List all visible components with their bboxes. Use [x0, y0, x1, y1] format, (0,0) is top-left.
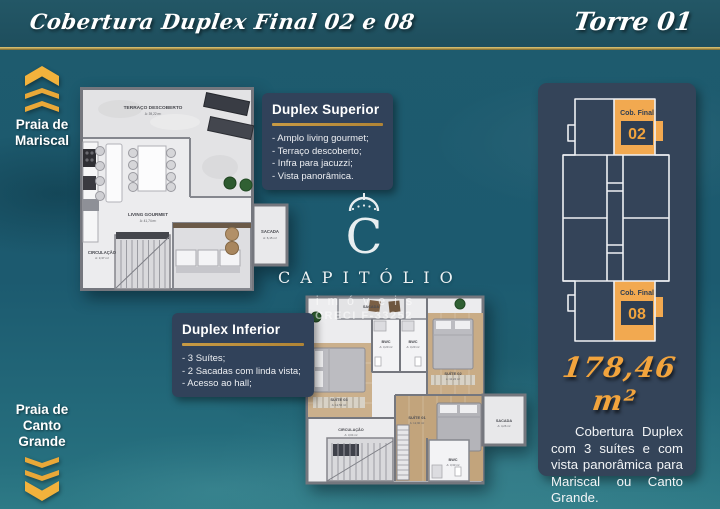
floorplan-duplex-inferior: SACADA BWC A: 3,20 m² BWC A: 3,20 m² SUÍ… — [305, 295, 530, 487]
room-area-circulacao: A: 3,37 m² — [95, 256, 109, 260]
room-label-living: LIVING GOURMET — [128, 212, 168, 217]
chevron-down-stripe — [25, 470, 59, 481]
unit-02-number: 02 — [628, 126, 646, 143]
marker-label-line: Praia de — [3, 402, 81, 418]
unit-02-label: Cob. Final — [620, 110, 654, 117]
chevron-up-solid — [25, 66, 59, 86]
feature-item: - 2 Sacadas com linda vista; — [182, 366, 304, 379]
marker-label-line: Canto — [3, 418, 81, 434]
panel-inferior-title: Duplex Inferior — [182, 322, 304, 337]
room-area-sacada: A: 6,15 m² — [263, 236, 277, 240]
banner-title-left: Cobertura Duplex Final 02 e 08 — [28, 9, 416, 34]
chevron-down-stripe — [25, 457, 59, 468]
listing-description: Cobertura Duplex com 3 suítes e com vist… — [551, 424, 683, 507]
room-label-circulacao-inf: CIRCULAÇÃO — [338, 427, 364, 432]
room-label-bwc3: BWC — [448, 458, 457, 462]
gold-underline — [272, 123, 383, 126]
room-label-suite03: SUÍTE 03 — [330, 397, 348, 402]
room-label-bwc2: BWC — [408, 340, 417, 344]
panel-superior-title: Duplex Superior — [272, 102, 383, 117]
room-area-suite01: A: 12,90 m² — [410, 421, 425, 425]
room-area-circulacao-inf: A: 3,04 m² — [345, 433, 358, 437]
room-area-bwc1: A: 3,20 m² — [380, 345, 393, 349]
gold-underline — [182, 343, 304, 346]
feature-list-inferior: - 3 Suítes; - 2 Sacadas com linda vista;… — [182, 353, 304, 391]
unit-08-number: 08 — [628, 306, 646, 323]
panel-duplex-inferior: Duplex Inferior - 3 Suítes; - 2 Sacadas … — [172, 313, 314, 397]
room-label-bwc1: BWC — [381, 340, 390, 344]
panel-duplex-superior: Duplex Superior - Amplo living gourmet; … — [262, 93, 393, 190]
room-area-living: A: 41,74 m² — [140, 219, 156, 223]
room-area-suite02: A: 11,24 m² — [446, 377, 460, 381]
unit-08-label: Cob. Final — [620, 290, 654, 297]
capitol-dome-icon: C — [335, 193, 393, 259]
chevron-up-icon — [3, 66, 81, 112]
marker-praia-canto-grande: Praia de Canto Grande — [3, 402, 81, 501]
total-area-value: 178,46 m² — [533, 351, 700, 417]
chevron-up-stripe — [25, 101, 59, 112]
room-label-sacada-right: SACADA — [496, 419, 513, 423]
feature-item: - Infra para jacuzzi; — [272, 158, 383, 171]
room-area-bwc3: A: 3,33 m² — [447, 463, 460, 467]
marker-praia-mariscal: Praia de Mariscal — [3, 66, 81, 149]
chevron-down-icon — [3, 455, 81, 501]
svg-text:C: C — [346, 209, 383, 259]
banner-gold-divider — [0, 47, 720, 50]
banner-title-right: Torre 01 — [572, 7, 694, 36]
brand-name: CAPITÓLIO — [268, 268, 460, 287]
room-area-sacada-right: A: 4,26 m² — [498, 424, 511, 428]
room-label-sacada: SACADA — [261, 229, 279, 234]
room-area-bwc2: A: 3,20 m² — [407, 345, 420, 349]
feature-item: - Amplo living gourmet; — [272, 133, 383, 146]
feature-item: - 3 Suítes; — [182, 353, 304, 366]
room-label-terraco: TERRAÇO DESCOBERTO — [124, 105, 183, 111]
marker-label-line: Praia de — [3, 117, 81, 133]
tower-floorplate-diagram: Cob. Final 02 Cob. Final 08 — [551, 95, 683, 347]
chevron-down-solid — [25, 481, 59, 501]
marker-label-line: Grande — [3, 434, 81, 450]
room-label-suite01: SUÍTE 01 — [408, 415, 426, 420]
room-label-sacada-top: SACADA — [363, 305, 380, 309]
chevron-up-stripe — [25, 88, 59, 99]
tower-key-panel: Cob. Final 02 Cob. Final 08 178,46 m² Co… — [538, 83, 696, 476]
room-label-circulacao: CIRCULAÇÃO — [88, 250, 117, 255]
feature-list-superior: - Amplo living gourmet; - Terraço descob… — [272, 133, 383, 183]
feature-item: - Vista panorâmica. — [272, 171, 383, 184]
room-label-suite02: SUÍTE 02 — [444, 371, 462, 376]
flyer-canvas: Cobertura Duplex Final 02 e 08 Torre 01 … — [0, 0, 720, 509]
floorplan-duplex-superior: TERRAÇO DESCOBERTO A: 39,22 m² LIVING GO… — [80, 87, 290, 291]
room-area-suite03: A: 12,52 m² — [332, 403, 347, 407]
feature-item: - Acesso ao hall; — [182, 378, 304, 391]
feature-item: - Terraço descoberto; — [272, 146, 383, 159]
marker-label-line: Mariscal — [3, 133, 81, 149]
room-area-terraco: A: 39,22 m² — [145, 112, 161, 116]
